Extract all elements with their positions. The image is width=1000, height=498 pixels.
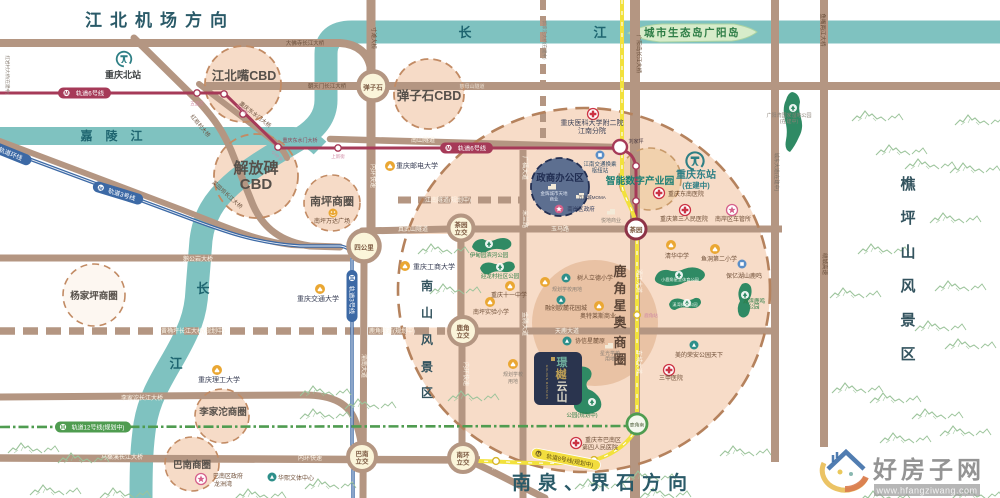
svg-text:弹子石: 弹子石 [363, 83, 383, 92]
svg-text:商业: 商业 [550, 196, 559, 203]
svg-text:山: 山 [557, 390, 568, 404]
svg-text:内环快速: 内环快速 [369, 164, 377, 188]
svg-text:朝天门长江大桥: 朝天门长江大桥 [308, 82, 347, 90]
svg-text:溪湾体育公园: 溪湾体育公园 [672, 301, 697, 308]
svg-text:风: 风 [421, 333, 433, 347]
svg-text:内环快速: 内环快速 [462, 362, 470, 386]
svg-text:江北嘴CBD: 江北嘴CBD [212, 68, 277, 83]
svg-text:M: M [446, 146, 450, 152]
svg-text:樾: 樾 [556, 367, 568, 381]
svg-text:立交: 立交 [457, 458, 471, 467]
svg-text:江: 江 [169, 356, 182, 371]
svg-text:江南交通换乘: 江南交通换乘 [583, 160, 617, 168]
svg-text:城市生态岛广阳岛: 城市生态岛广阳岛 [644, 26, 740, 39]
svg-text:真武山隧道: 真武山隧道 [398, 225, 428, 233]
svg-text:立交: 立交 [457, 331, 471, 340]
svg-text:奥特莱斯商业: 奥特莱斯商业 [580, 312, 616, 320]
svg-text:鹿: 鹿 [613, 264, 626, 279]
svg-text:重庆第三人民医院: 重庆第三人民医院 [660, 215, 708, 223]
svg-text:南坪实验小学: 南坪实验小学 [473, 308, 509, 316]
svg-text:轨道12号线(规划中): 轨道12号线(规划中) [72, 424, 125, 432]
svg-text:金腾大道: 金腾大道 [521, 312, 529, 336]
svg-text:用地: 用地 [605, 356, 615, 363]
svg-text:南环: 南环 [457, 450, 471, 459]
svg-text:重庆东南医院: 重庆东南医院 [668, 190, 704, 198]
svg-text:黄桷坪长江大桥(规划中): 黄桷坪长江大桥(规划中) [161, 327, 225, 335]
svg-text:南坪商圈: 南坪商圈 [310, 194, 354, 208]
svg-text:广福大道: 广福大道 [521, 156, 529, 180]
svg-text:长: 长 [458, 25, 472, 40]
svg-text:南岸区车管所: 南岸区车管所 [715, 215, 751, 223]
svg-text:清华中学: 清华中学 [665, 252, 689, 260]
svg-text:巴南区政府: 巴南区政府 [213, 472, 243, 480]
svg-text:鹿角隧道(规划中): 鹿角隧道(规划中) [369, 327, 415, 335]
svg-text:景: 景 [421, 360, 433, 374]
svg-text:南坪万达广场: 南坪万达广场 [314, 217, 350, 225]
svg-text:M: M [64, 91, 68, 97]
svg-text:鹿角站: 鹿角站 [644, 312, 658, 319]
svg-text:好房子网: 好房子网 [872, 456, 985, 484]
svg-text:绕城高速: 绕城高速 [821, 253, 829, 276]
svg-text:公园(规划中): 公园(规划中) [566, 411, 597, 419]
svg-text:弹子石CBD: 弹子石CBD [397, 88, 462, 103]
svg-text:风: 风 [900, 278, 915, 295]
svg-text:轨道6号线: 轨道6号线 [76, 90, 104, 98]
svg-text:智能数字产业园: 智能数字产业园 [606, 174, 675, 187]
svg-text:立交: 立交 [455, 228, 469, 237]
svg-text:树人立德小学: 树人立德小学 [577, 274, 613, 282]
svg-text:小鹿角星里体育公园: 小鹿角星里体育公园 [661, 276, 699, 283]
svg-text:迎龙村社区公园: 迎龙村社区公园 [481, 272, 520, 280]
svg-text:四公里: 四公里 [354, 243, 374, 252]
svg-text:伊甸园滨河公园: 伊甸园滨河公园 [470, 251, 509, 259]
svg-text:大佛寺长江大桥: 大佛寺长江大桥 [286, 39, 325, 47]
svg-text:解放碑: 解放碑 [233, 159, 278, 177]
svg-text:广阳湾国家湿地公园: 广阳湾国家湿地公园 [766, 112, 811, 119]
svg-text:规划学校: 规划学校 [503, 371, 523, 378]
svg-text:www.hfangziwang.com: www.hfangziwang.com [875, 486, 977, 496]
svg-text:重庆交通大学: 重庆交通大学 [297, 294, 339, 303]
svg-text:刘家坪: 刘家坪 [628, 138, 643, 145]
svg-text:景: 景 [900, 311, 915, 329]
svg-text:华熙文体中心: 华熙文体中心 [278, 474, 314, 482]
svg-text:美的荣安公园天下: 美的荣安公园天下 [675, 351, 723, 359]
svg-text:鹿角南: 鹿角南 [630, 422, 645, 429]
svg-text:江北机场方向: 江北机场方向 [85, 10, 235, 30]
svg-text:重庆东水门大桥: 重庆东水门大桥 [282, 137, 317, 144]
svg-text:规划学校用地: 规划学校用地 [552, 286, 582, 293]
svg-text:马桑溪长江大桥: 马桑溪长江大桥 [101, 453, 143, 461]
svg-text:三甲医院: 三甲医院 [659, 374, 683, 382]
svg-text:角: 角 [613, 281, 626, 296]
svg-text:米兰路: 米兰路 [521, 210, 529, 228]
svg-text:保亿湖山鹿鸣: 保亿湖山鹿鸣 [726, 272, 762, 280]
svg-text:李家沱商圈: 李家沱商圈 [198, 406, 247, 418]
svg-text:区: 区 [421, 386, 433, 400]
svg-text:李家沱长江大桥: 李家沱长江大桥 [121, 394, 163, 402]
svg-text:渝南大道: 渝南大道 [360, 354, 368, 378]
svg-text:(在建中): (在建中) [780, 118, 799, 125]
svg-text:江: 江 [593, 25, 606, 40]
svg-text:南泉、界石方向: 南泉、界石方向 [512, 471, 694, 494]
svg-text:万国城MOMA: 万国城MOMA [578, 194, 606, 201]
svg-text:南岸区政府: 南岸区政府 [567, 205, 595, 213]
svg-text:立交: 立交 [356, 457, 370, 466]
svg-text:玉马路: 玉马路 [551, 225, 569, 233]
svg-text:通江大道: 通江大道 [635, 269, 643, 293]
svg-text:政商办公区: 政商办公区 [536, 172, 584, 184]
svg-text:江南分院: 江南分院 [578, 126, 606, 135]
svg-text:广阳岛长江大桥: 广阳岛长江大桥 [635, 35, 643, 74]
svg-text:慈母山隧道: 慈母山隧道 [459, 83, 484, 90]
svg-text:重庆十一中学: 重庆十一中学 [491, 291, 527, 299]
svg-text:嘉陵江: 嘉陵江 [79, 128, 155, 143]
svg-text:巴南商圈: 巴南商圈 [173, 459, 211, 471]
svg-text:东城大道: 东城大道 [635, 350, 643, 374]
svg-text:茶园: 茶园 [454, 220, 469, 229]
svg-text:茶园: 茶园 [629, 225, 644, 234]
svg-text:轨道6号线: 轨道6号线 [458, 145, 486, 153]
svg-text:商: 商 [613, 335, 626, 350]
svg-text:南山隧道: 南山隧道 [411, 136, 435, 144]
svg-text:鹅公岩大桥: 鹅公岩大桥 [183, 255, 213, 263]
svg-text:区: 区 [900, 346, 915, 363]
svg-text:CBD: CBD [240, 176, 273, 193]
svg-text:M: M [348, 276, 354, 280]
svg-text:鱼洞第二小学: 鱼洞第二小学 [701, 255, 737, 263]
svg-text:郭家沱大桥(在建中): 郭家沱大桥(在建中) [541, 21, 548, 60]
svg-text:重庆医科大学附二院: 重庆医科大学附二院 [561, 118, 624, 127]
svg-text:天鹿大道: 天鹿大道 [555, 327, 579, 335]
svg-text:轨道3号线: 轨道3号线 [348, 286, 356, 314]
svg-text:红岩村大桥(在建中): 红岩村大桥(在建中) [4, 56, 11, 95]
svg-text:第四人民医院: 第四人民医院 [582, 444, 618, 452]
svg-text:枢纽站: 枢纽站 [592, 167, 609, 175]
svg-text:重庆市巴南区: 重庆市巴南区 [585, 436, 621, 444]
svg-text:内环快速: 内环快速 [298, 454, 322, 462]
svg-text:鹿角: 鹿角 [457, 323, 470, 332]
svg-text:坪: 坪 [900, 210, 915, 227]
svg-text:南: 南 [421, 278, 433, 293]
svg-text:公园: 公园 [748, 304, 760, 311]
svg-text:城东大道(在建中): 城东大道(在建中) [773, 153, 780, 192]
svg-text:樵: 樵 [900, 175, 915, 193]
svg-text:五里店: 五里店 [190, 100, 204, 107]
svg-text:寸滩大桥: 寸滩大桥 [370, 27, 378, 50]
svg-text:星: 星 [613, 298, 626, 313]
svg-text:GOLDEN MANSION: GOLDEN MANSION [545, 365, 549, 400]
svg-text:融创欧麓花园城: 融创欧麓花园城 [545, 304, 587, 312]
svg-text:璟: 璟 [557, 356, 568, 369]
svg-text:上新街: 上新街 [331, 153, 345, 160]
svg-text:重庆东站: 重庆东站 [676, 168, 716, 181]
svg-text:杨家坪商圈: 杨家坪商圈 [70, 290, 118, 302]
svg-text:巴南: 巴南 [356, 449, 370, 458]
svg-text:重庆北站: 重庆北站 [105, 69, 141, 80]
svg-text:悦地商业: 悦地商业 [601, 217, 621, 224]
svg-text:江南隧道(规划中): 江南隧道(规划中) [425, 196, 471, 204]
svg-text:重庆理工大学: 重庆理工大学 [198, 375, 240, 384]
svg-text:协信星麓原: 协信星麓原 [575, 337, 605, 345]
svg-text:用地: 用地 [508, 378, 518, 385]
svg-text:鱼嘴两江大桥: 鱼嘴两江大桥 [819, 13, 827, 47]
svg-text:山: 山 [900, 244, 915, 261]
svg-text:M: M [61, 425, 65, 431]
svg-text:重庆邮电大学: 重庆邮电大学 [396, 161, 438, 170]
svg-text:龙洲湾: 龙洲湾 [214, 480, 232, 488]
svg-text:山: 山 [421, 305, 433, 320]
svg-text:长: 长 [196, 281, 210, 296]
svg-text:(在建中): (在建中) [682, 180, 710, 190]
svg-text:重庆工商大学: 重庆工商大学 [413, 262, 455, 271]
